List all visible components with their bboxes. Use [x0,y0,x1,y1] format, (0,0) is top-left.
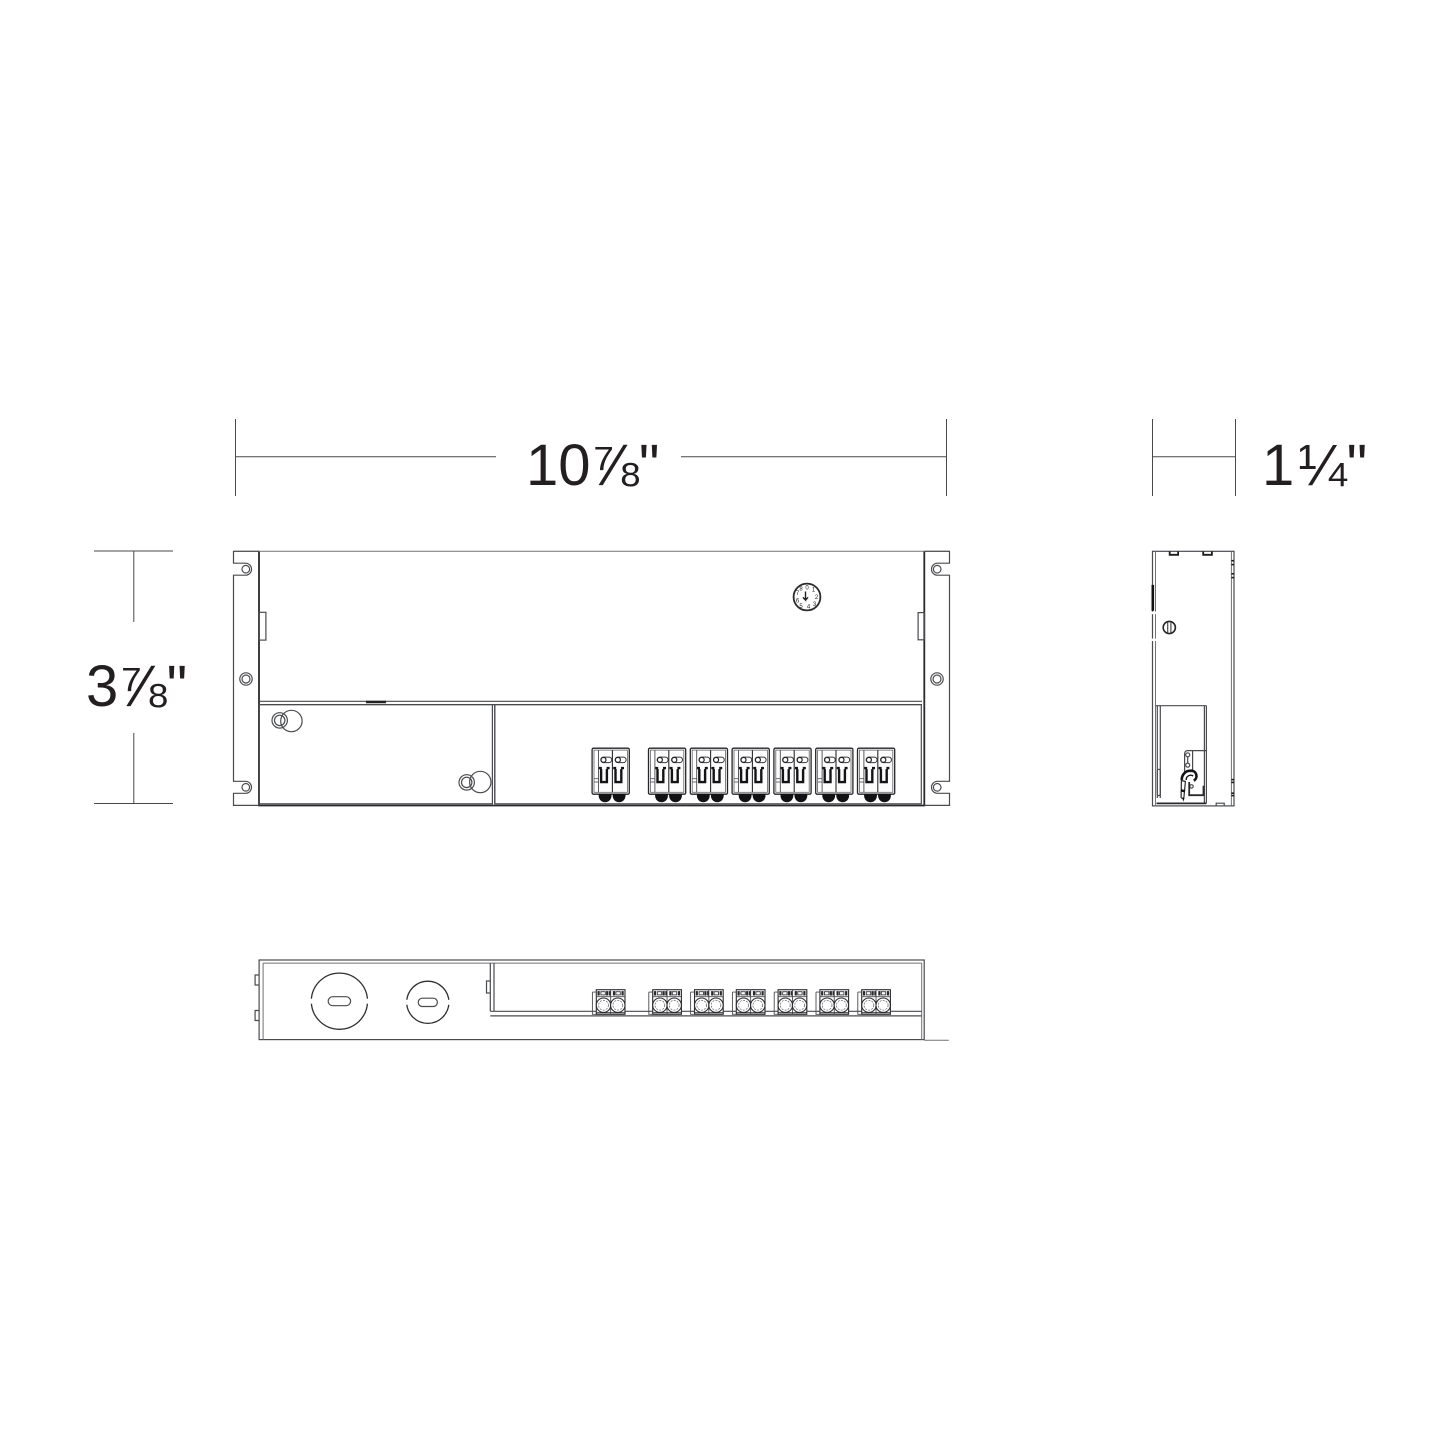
svg-text:8: 8 [799,587,803,593]
svg-text:3⅞": 3⅞" [86,654,187,719]
svg-text:10⅞": 10⅞" [526,433,659,498]
svg-text:1: 1 [812,588,816,594]
svg-text:1¼": 1¼" [1262,433,1367,498]
svg-text:0: 0 [805,586,809,592]
svg-text:2: 2 [815,595,819,601]
